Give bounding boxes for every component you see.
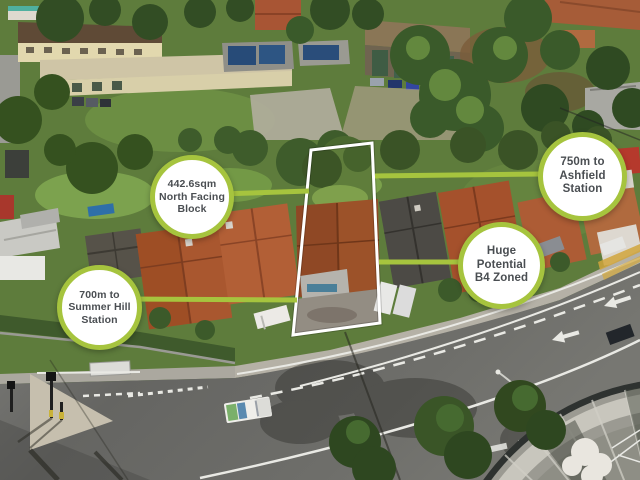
connector-ashfield (375, 174, 542, 176)
badge-summer-hill-station: 700m to Summer Hill Station (57, 265, 142, 350)
badge-huge-potential: Huge Potential B4 Zoned (458, 222, 545, 309)
badge-line: Summer Hill (68, 301, 130, 314)
badge-line: North Facing (159, 191, 225, 204)
badge-line: Ashfield (559, 170, 605, 184)
badge-line: B4 Zoned (475, 272, 528, 286)
badge-line: Block (177, 203, 206, 216)
badge-line: 750m to (560, 156, 604, 170)
solar-panels (228, 46, 256, 65)
badge-ashfield-station: 750m to Ashfield Station (538, 132, 627, 221)
terracotta-house-2 (216, 203, 300, 304)
subject-property (293, 142, 380, 335)
connector-summerhill (128, 299, 297, 300)
badge-line: Huge (487, 245, 516, 259)
badge-north-facing-block: 442.6sqm North Facing Block (150, 155, 234, 239)
aerial-scene (0, 0, 640, 480)
bus-shelter (90, 361, 131, 376)
badge-line: 442.6sqm (168, 178, 217, 191)
badge-line: Potential (477, 259, 526, 273)
red-container (0, 195, 14, 219)
aerial-property-photo: 442.6sqm North Facing Block 750m to Ashf… (0, 0, 640, 480)
badge-line: 700m to (79, 289, 119, 302)
badge-line: Station (81, 314, 117, 327)
badge-line: Station (563, 183, 603, 197)
